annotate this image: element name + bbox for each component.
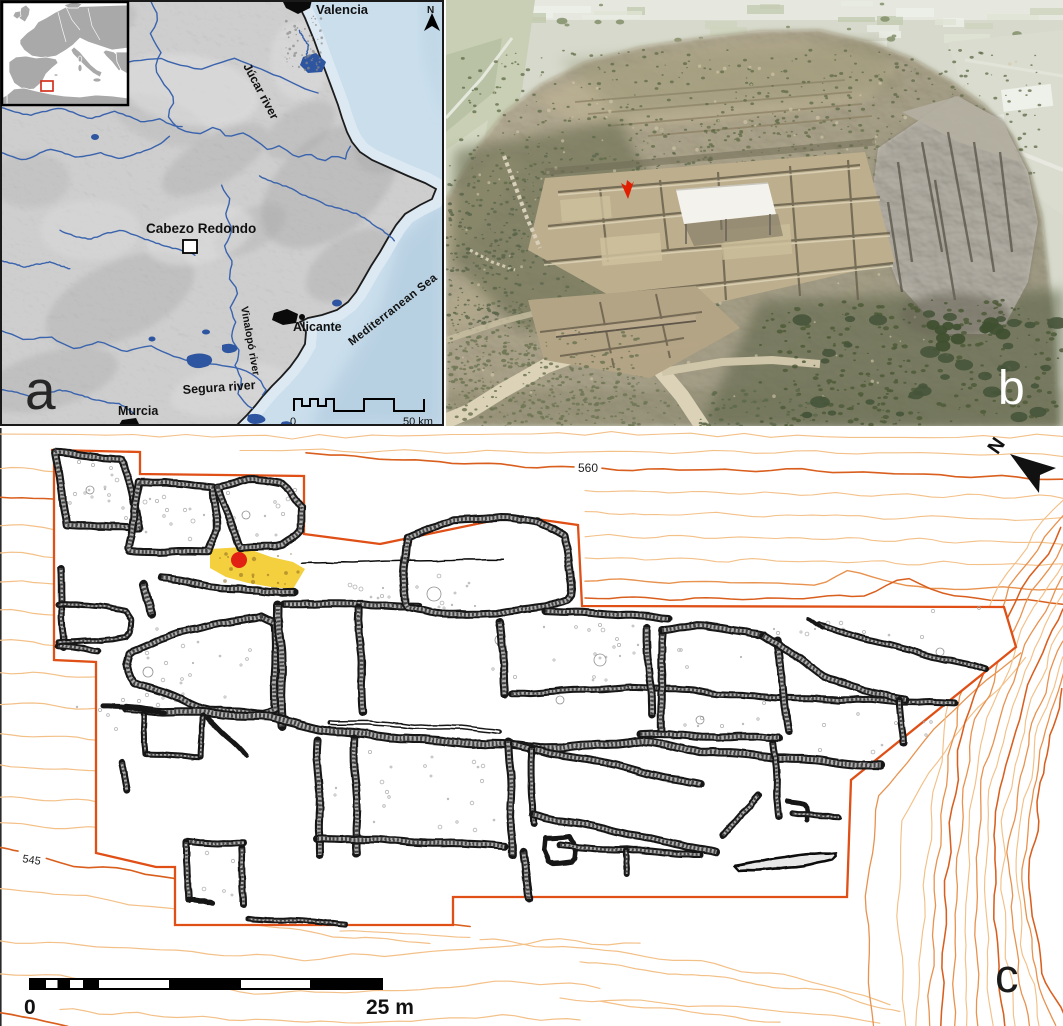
- svg-text:N: N: [427, 5, 434, 16]
- svg-text:25 m: 25 m: [366, 996, 414, 1019]
- svg-text:560: 560: [578, 461, 598, 475]
- svg-text:Alicante: Alicante: [293, 320, 342, 334]
- svg-text:Murcia: Murcia: [118, 404, 159, 418]
- svg-text:Valencia: Valencia: [316, 2, 369, 17]
- svg-text:b: b: [998, 362, 1025, 415]
- svg-text:c: c: [995, 949, 1019, 1002]
- svg-text:0: 0: [24, 996, 36, 1019]
- svg-text:a: a: [25, 359, 56, 421]
- svg-text:Cabezo Redondo: Cabezo Redondo: [146, 221, 256, 236]
